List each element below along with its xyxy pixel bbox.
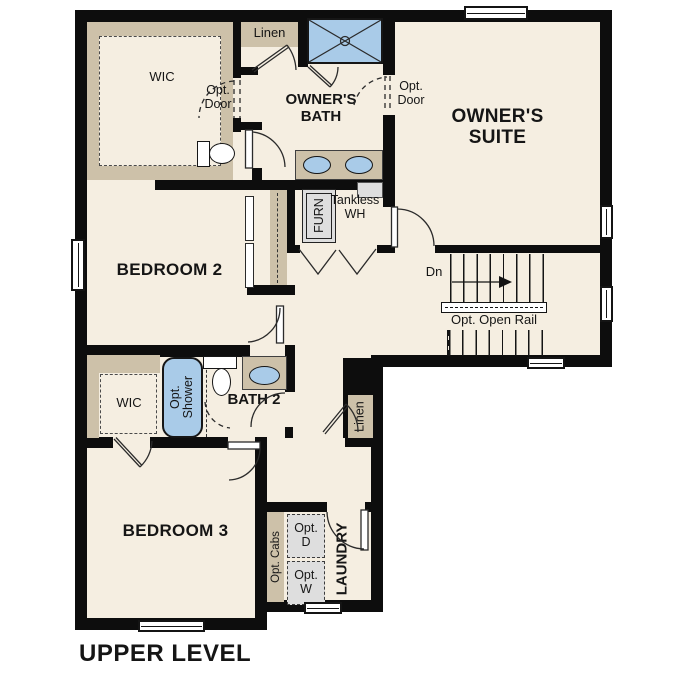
wall [383, 10, 395, 75]
wall [287, 190, 295, 252]
room-label-bedroom2: BEDROOM 2 [102, 260, 237, 279]
window-pane-line [606, 290, 607, 318]
wall [241, 67, 258, 75]
annotation-opt-door-suite: Opt. Door [390, 79, 432, 107]
wall [260, 437, 267, 448]
wall [233, 22, 241, 78]
window-pane-line [307, 608, 339, 609]
annotation-opt-shower: Opt. Shower [162, 357, 203, 438]
wall [75, 10, 87, 630]
wall [365, 502, 373, 512]
wall [435, 245, 600, 253]
annotation-opt-open-rail: Opt. Open Rail [441, 313, 547, 328]
room-label-owners-suite: OWNER'S SUITE [420, 106, 575, 149]
room-label-bedroom3: BEDROOM 3 [103, 521, 248, 540]
window-pane-line [530, 363, 562, 364]
window-pane-line [78, 243, 79, 287]
stairs-upper-run [450, 254, 544, 303]
room-label-laundry: LAUNDRY [329, 514, 355, 604]
window [138, 620, 205, 632]
room-label-wic-owners: WIC [127, 70, 197, 85]
stairs-lower-run [447, 330, 544, 356]
window [464, 6, 528, 20]
room-label-linen-hall: Linen [241, 26, 298, 41]
closet-door-panel [245, 196, 254, 241]
room-label-linen-lower: Linen [348, 395, 373, 438]
wall [287, 245, 300, 253]
wall [150, 437, 228, 448]
opt-dryer: Opt. D [287, 514, 325, 558]
window [527, 357, 565, 369]
room-label-owners-bath: OWNER'S BATH [277, 92, 365, 126]
window-pane-line [141, 626, 202, 627]
window [304, 602, 342, 614]
wall [255, 437, 267, 630]
window [71, 239, 85, 291]
wall [343, 358, 383, 395]
wall [345, 438, 375, 447]
wall [267, 502, 327, 512]
annotation-stairs-down: Dn [420, 265, 448, 280]
annotation-tankless-wh: Tankless WH [329, 193, 381, 221]
annotation-opt-door-wic: Opt. Door [197, 83, 239, 111]
opt-shower-dash [206, 360, 207, 437]
closet-door-panel [245, 243, 254, 288]
floor-plan: WIC Linen OWNER'S BATH Opt. Door Opt. Do… [0, 0, 687, 687]
wall [377, 245, 395, 253]
stair-handrail-dash [445, 307, 543, 308]
room-label-wic-bath2: WIC [104, 396, 154, 411]
shower [307, 18, 383, 64]
closet-rod [277, 193, 278, 283]
room-label-bath2: BATH 2 [225, 392, 283, 409]
wall [155, 180, 295, 190]
window [600, 286, 613, 322]
wic-bath2-closet-left [87, 355, 99, 438]
opt-washer: Opt. W [287, 561, 325, 605]
wall [377, 355, 612, 367]
plan-title: UPPER LEVEL [79, 641, 309, 668]
window-pane-line [467, 13, 525, 14]
window-pane-line [606, 209, 607, 235]
wall [247, 285, 295, 295]
wall [87, 437, 113, 448]
vanity-sink [303, 156, 331, 174]
vanity-sink [345, 156, 373, 174]
vanity-sink [249, 366, 280, 385]
window [600, 205, 613, 239]
wall [383, 115, 395, 207]
bedroom2-closet [270, 190, 287, 285]
wall [285, 427, 293, 438]
toilet-bowl [209, 143, 235, 164]
annotation-opt-cabs: Opt. Cabs [267, 512, 284, 602]
